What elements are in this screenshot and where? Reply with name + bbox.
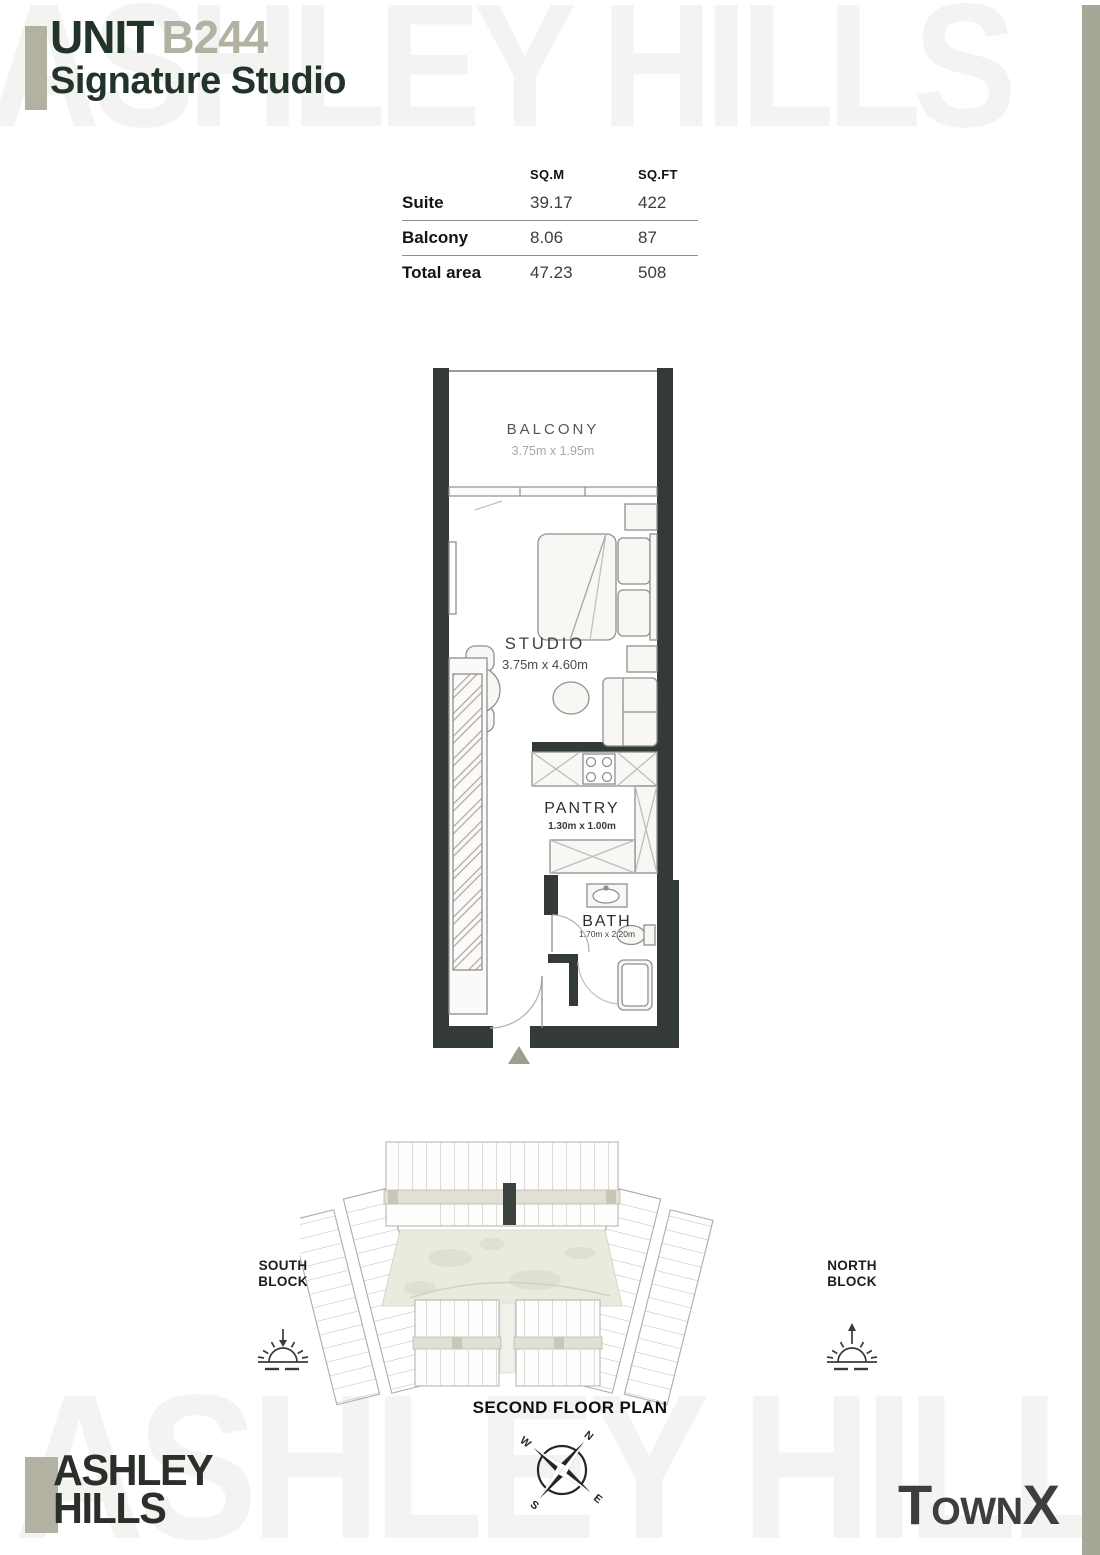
north-block-label: NORTH BLOCK <box>802 1258 902 1290</box>
core <box>554 1337 564 1349</box>
col-header-sqm: SQ.M <box>530 167 638 182</box>
col-header-sqft: SQ.FT <box>638 167 698 182</box>
headboard <box>650 534 657 640</box>
row-sqm: 47.23 <box>530 263 638 283</box>
townx-own: OWN <box>931 1491 1022 1534</box>
core <box>388 1190 398 1204</box>
sunrise-icon <box>820 1318 884 1378</box>
corridor <box>384 1190 620 1204</box>
studio-dims: 3.75m x 4.60m <box>502 657 588 672</box>
logo-text: ASHLEY HILLS <box>53 1452 212 1528</box>
wall-bath-l2 <box>569 954 578 1006</box>
wardrobe <box>449 658 487 1014</box>
logo-line2: HILLS <box>53 1490 212 1528</box>
furniture <box>449 504 657 1028</box>
south-block-line2: BLOCK <box>233 1274 333 1290</box>
wall-right <box>657 368 673 880</box>
wall-bath-stub <box>544 875 558 915</box>
row-sqft: 422 <box>638 193 698 213</box>
row-sqm: 39.17 <box>530 193 638 213</box>
balcony-label: BALCONY <box>507 421 600 438</box>
row-label: Balcony <box>402 228 530 248</box>
row-sqft: 87 <box>638 228 698 248</box>
studio-label: STUDIO <box>505 635 585 653</box>
north-block-line1: NORTH <box>802 1258 902 1274</box>
pantry-label: PANTRY <box>544 800 619 817</box>
nightstand <box>625 504 657 530</box>
south-block-label: SOUTH BLOCK <box>233 1258 333 1290</box>
compass-south: S <box>528 1498 541 1512</box>
balcony-dims: 3.75m x 1.95m <box>512 444 595 458</box>
page-edge-bar <box>1082 5 1100 1555</box>
compass-icon: N E S W <box>512 1424 612 1519</box>
stove <box>583 754 615 784</box>
brochure-page: ASHLEY HILLS ASHLEY HILLS UNITB244 Signa… <box>0 0 1100 1555</box>
wall-bottom-right <box>530 1026 679 1048</box>
bathroom-fixtures <box>552 884 655 1010</box>
core <box>452 1337 462 1349</box>
side-table <box>627 646 657 672</box>
unit-subtitle: Signature Studio <box>50 62 346 100</box>
north-block-line2: BLOCK <box>802 1274 902 1290</box>
key-plan <box>300 1138 840 1428</box>
floor-plan-caption: SECOND FLOOR PLAN <box>420 1398 720 1418</box>
sofa <box>603 678 657 746</box>
pouf <box>553 682 589 714</box>
shower-door-arc <box>578 962 618 1004</box>
row-sqft: 508 <box>638 263 698 283</box>
title-accent-bar <box>25 26 47 110</box>
pantry-dims: 1.30m x 1.00m <box>548 821 616 832</box>
unit-floor-plan: BALCONY 3.75m x 1.95m STUDIO 3.75m x 4.6… <box>420 358 680 1070</box>
table-row: Suite 39.17 422 <box>402 186 698 221</box>
pillow <box>618 538 650 584</box>
entry-arrow-icon <box>508 1046 530 1064</box>
courtyard <box>382 1230 622 1306</box>
top-building-band <box>384 1142 620 1226</box>
wall-mirror <box>449 542 456 614</box>
page-title: UNITB244 Signature Studio <box>50 13 346 100</box>
row-sqm: 8.06 <box>530 228 638 248</box>
table-row: Total area 47.23 508 <box>402 256 698 290</box>
townx-t: T <box>898 1472 931 1537</box>
bottom-clusters <box>413 1300 602 1386</box>
pillow <box>618 590 650 636</box>
highlighted-unit <box>503 1183 516 1225</box>
townx-x: X <box>1023 1472 1059 1537</box>
unit-number: B244 <box>161 11 267 63</box>
entry-door <box>490 976 542 1028</box>
table-row: Balcony 8.06 87 <box>402 221 698 256</box>
wall-right-bath <box>657 880 679 1048</box>
bath-label: BATH <box>582 913 631 930</box>
toilet-tank <box>644 925 655 945</box>
core <box>606 1190 616 1204</box>
wall-bottom-left <box>433 1026 493 1048</box>
unit-title: UNITB244 <box>50 13 346 61</box>
row-label: Total area <box>402 263 530 283</box>
townx-logo: TOWNX <box>898 1472 1078 1537</box>
compass-north: N <box>582 1429 596 1443</box>
bed <box>538 534 657 640</box>
wall-left <box>433 368 449 1048</box>
compass-west: W <box>517 1435 533 1451</box>
unit-word: UNIT <box>50 11 153 63</box>
row-label: Suite <box>402 193 530 213</box>
bath-dims: 1.70m x 2.20m <box>579 929 635 939</box>
walkway <box>500 1303 515 1373</box>
area-table: SQ.M SQ.FT Suite 39.17 422 Balcony 8.06 … <box>402 162 698 290</box>
compass-east: E <box>591 1492 604 1506</box>
sunset-icon <box>251 1322 315 1378</box>
south-block-line1: SOUTH <box>233 1258 333 1274</box>
area-table-header: SQ.M SQ.FT <box>402 162 698 186</box>
